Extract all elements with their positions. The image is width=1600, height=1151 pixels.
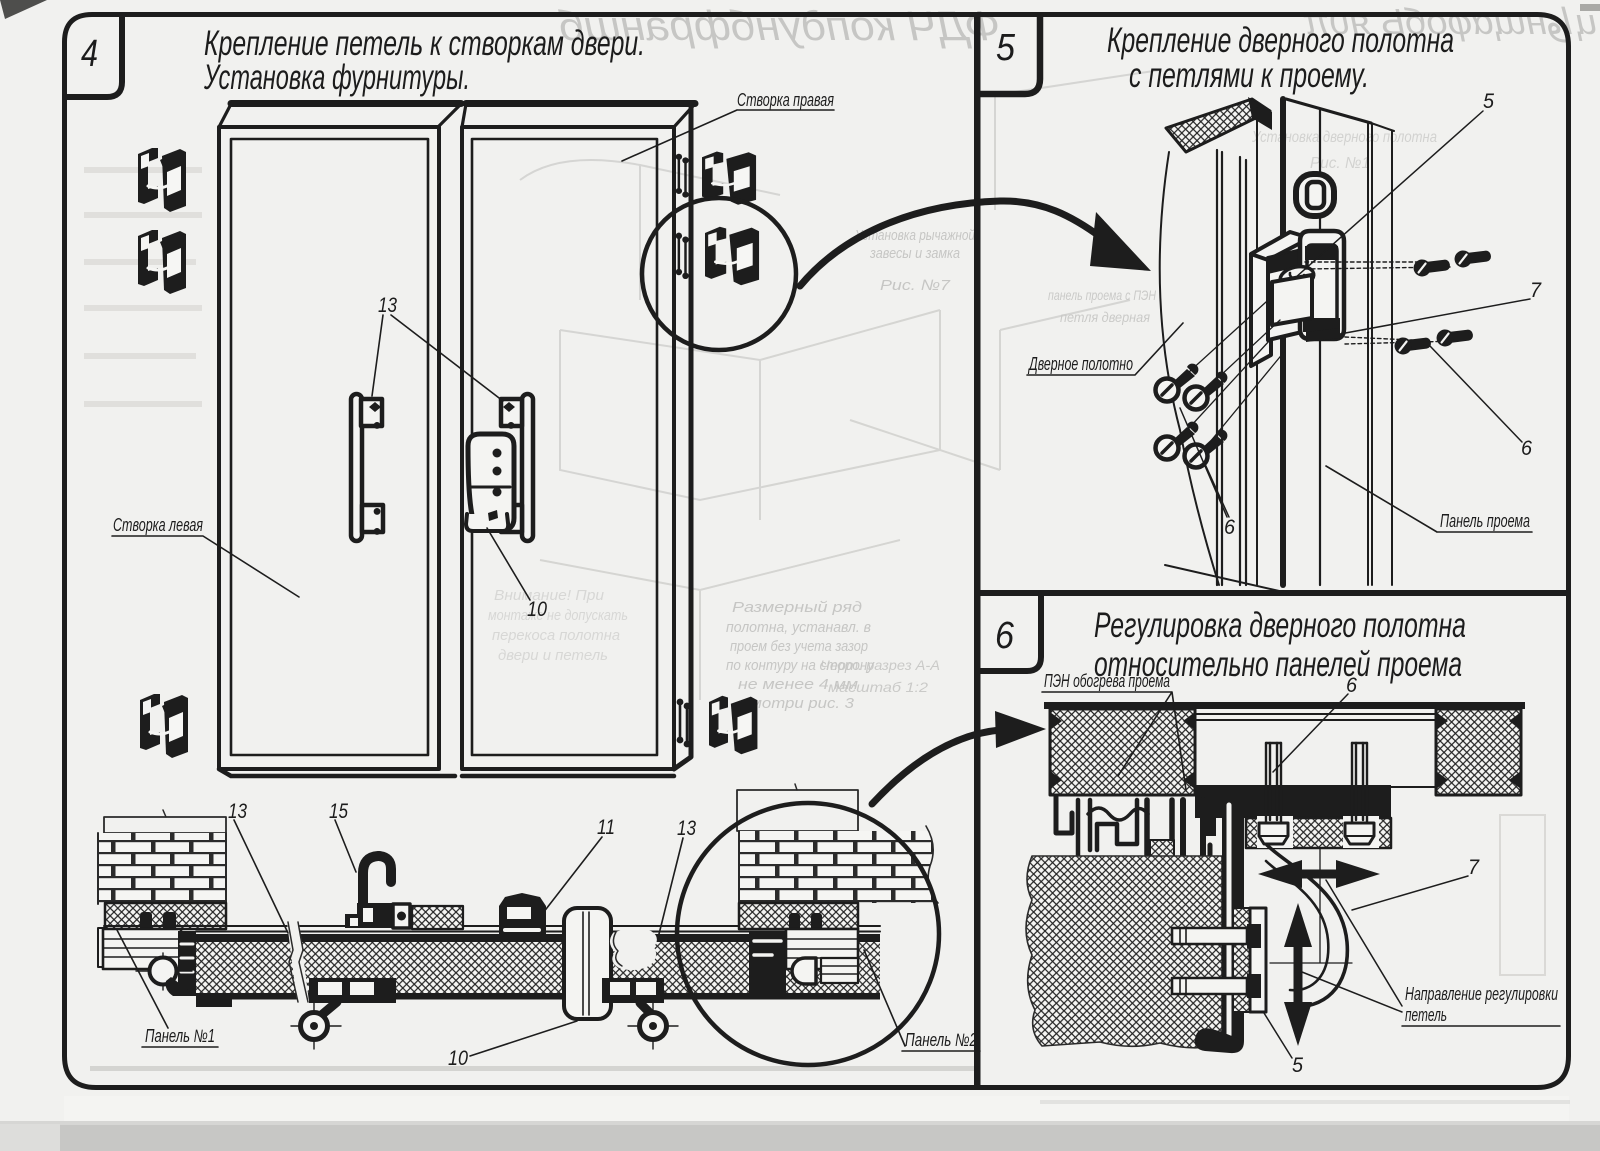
svg-text:Рис. №7: Рис. №7 bbox=[880, 277, 951, 294]
svg-text:Панель №2: Панель №2 bbox=[905, 1030, 977, 1050]
svg-text:Установка фурнитуры.: Установка фурнитуры. bbox=[203, 58, 470, 97]
svg-text:5: 5 bbox=[996, 27, 1016, 69]
svg-text:11: 11 bbox=[597, 816, 615, 839]
svg-text:Черт. разрез А-А: Черт. разрез А-А bbox=[820, 657, 940, 673]
svg-text:панель проема с ПЭН: панель проема с ПЭН bbox=[1048, 287, 1157, 303]
svg-text:Внимание! При: Внимание! При bbox=[494, 587, 605, 604]
svg-text:Установка дверного полотна: Установка дверного полотна bbox=[1251, 129, 1437, 146]
svg-text:4: 4 bbox=[81, 33, 98, 75]
svg-text:масштаб 1:2: масштаб 1:2 bbox=[828, 679, 928, 695]
svg-text:Крепление дверного полотна: Крепление дверного полотна bbox=[1107, 21, 1454, 60]
svg-text:полотна, устанавл. в: полотна, устанавл. в bbox=[726, 619, 871, 636]
svg-text:Створка правая: Створка правая bbox=[737, 90, 834, 110]
svg-text:монтаже не допускать: монтаже не допускать bbox=[488, 607, 628, 624]
svg-text:двери и петель: двери и петель bbox=[498, 647, 608, 664]
svg-text:с петлями к проему.: с петлями к проему. bbox=[1129, 56, 1369, 95]
svg-text:7: 7 bbox=[1530, 279, 1542, 302]
svg-text:завесы и замка: завесы и замка bbox=[869, 245, 960, 262]
svg-text:13: 13 bbox=[378, 294, 397, 317]
svg-text:5: 5 bbox=[1483, 90, 1494, 113]
svg-text:6: 6 bbox=[1224, 516, 1235, 539]
svg-text:6: 6 bbox=[1521, 437, 1532, 460]
svg-text:15: 15 bbox=[329, 800, 348, 823]
svg-text:13: 13 bbox=[228, 800, 247, 823]
svg-text:петель: петель bbox=[1405, 1005, 1447, 1025]
svg-text:10: 10 bbox=[527, 598, 547, 621]
svg-text:перекоса полотна: перекоса полотна bbox=[492, 627, 620, 644]
svg-text:ПЭН обогрева проема: ПЭН обогрева проема bbox=[1044, 671, 1170, 691]
svg-text:Размерный ряд: Размерный ряд bbox=[732, 599, 862, 616]
svg-text:петля дверная: петля дверная bbox=[1060, 309, 1150, 325]
svg-text:Створка левая: Створка левая bbox=[113, 515, 203, 535]
svg-text:проем без учета зазор: проем без учета зазор bbox=[730, 638, 868, 655]
svg-text:Панель №1: Панель №1 bbox=[145, 1026, 215, 1046]
svg-text:10: 10 bbox=[448, 1047, 468, 1070]
svg-text:Панель проема: Панель проема bbox=[1440, 511, 1530, 531]
svg-text:5: 5 bbox=[1292, 1054, 1303, 1077]
svg-text:6: 6 bbox=[995, 615, 1015, 657]
svg-text:Регулировка дверного полотна: Регулировка дверного полотна bbox=[1094, 606, 1466, 645]
svg-text:Дверное полотно: Дверное полотно bbox=[1028, 354, 1133, 374]
svg-text:13: 13 bbox=[677, 817, 696, 840]
svg-text:7: 7 bbox=[1468, 856, 1480, 879]
svg-text:смотри рис. 3: смотри рис. 3 bbox=[742, 695, 855, 712]
svg-text:Направление регулировки: Направление регулировки bbox=[1405, 984, 1558, 1004]
